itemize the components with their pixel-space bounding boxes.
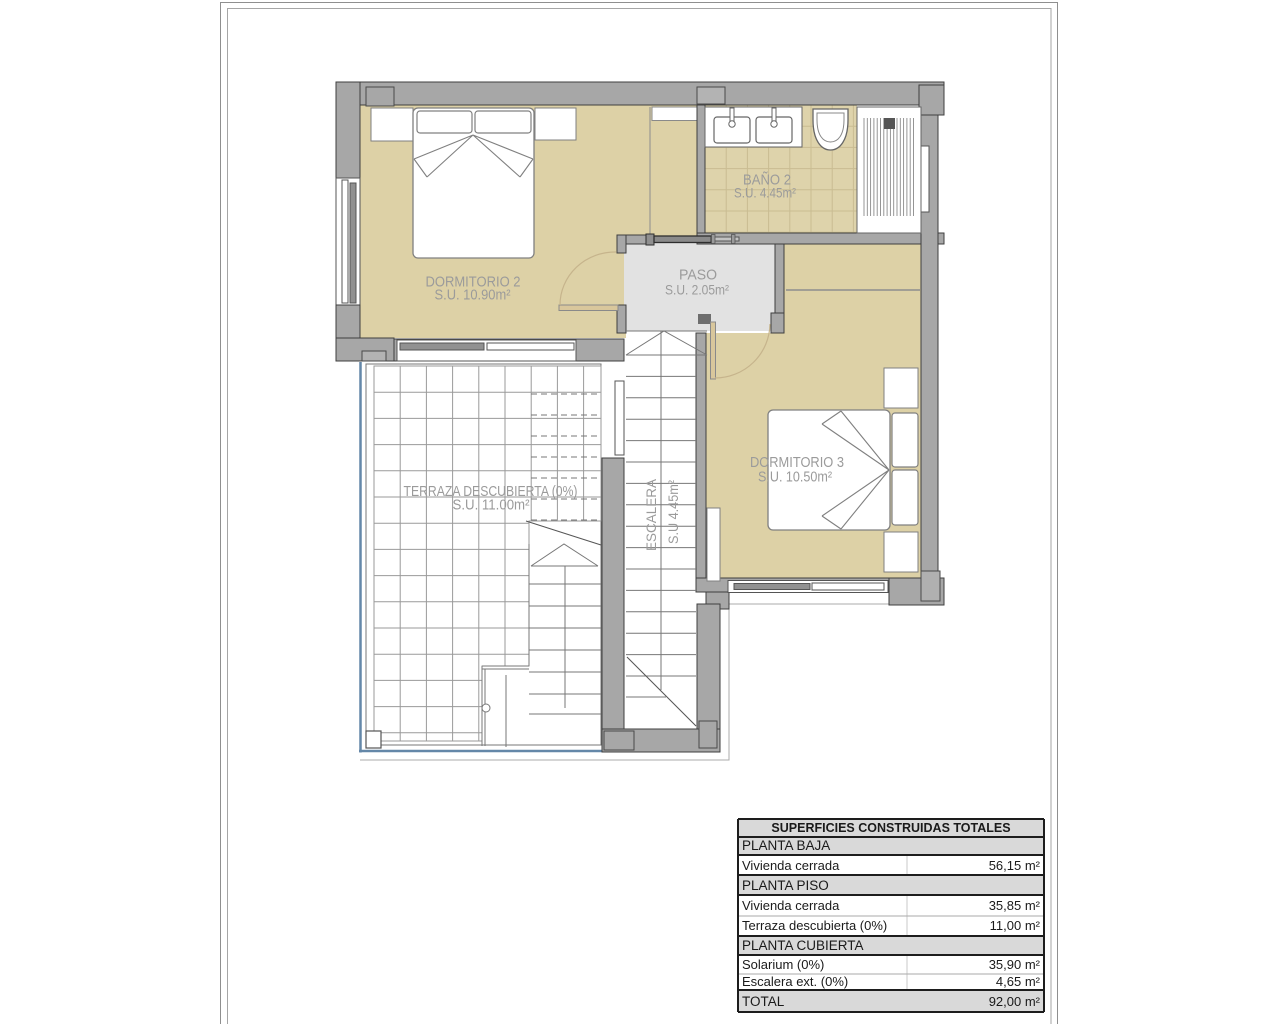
svg-text:SUPERFICIES CONSTRUIDAS TOTALE: SUPERFICIES CONSTRUIDAS TOTALES [771,821,1010,835]
svg-text:S.U. 2.05m²: S.U. 2.05m² [665,282,729,298]
svg-text:Solarium (0%): Solarium (0%) [742,957,824,972]
svg-text:S.U 4.45m²: S.U 4.45m² [666,480,681,544]
svg-text:Vivienda cerrada: Vivienda cerrada [742,858,840,873]
svg-text:PLANTA PISO: PLANTA PISO [742,878,829,893]
svg-text:56,15 m²: 56,15 m² [989,858,1041,873]
svg-text:Vivienda cerrada: Vivienda cerrada [742,898,840,913]
svg-text:ESCALERA: ESCALERA [643,478,659,551]
svg-text:S.U. 10.90m²: S.U. 10.90m² [435,288,511,304]
svg-text:PLANTA CUBIERTA: PLANTA CUBIERTA [742,938,864,953]
svg-text:92,00 m²: 92,00 m² [989,994,1041,1009]
svg-text:35,90 m²: 35,90 m² [989,957,1041,972]
svg-text:PLANTA BAJA: PLANTA BAJA [742,838,830,853]
svg-text:S.U. 4.45m²: S.U. 4.45m² [734,185,796,201]
svg-text:TOTAL: TOTAL [742,994,785,1009]
svg-text:11,00 m²: 11,00 m² [990,918,1041,933]
svg-text:4,65 m²: 4,65 m² [996,974,1041,989]
svg-text:Escalera ext. (0%): Escalera ext. (0%) [742,974,848,989]
svg-text:Terraza descubierta (0%): Terraza descubierta (0%) [742,918,887,933]
svg-text:S.U. 11.00m²: S.U. 11.00m² [453,498,530,514]
svg-text:S.U. 10.50m²: S.U. 10.50m² [758,470,832,486]
svg-text:35,85 m²: 35,85 m² [989,898,1041,913]
